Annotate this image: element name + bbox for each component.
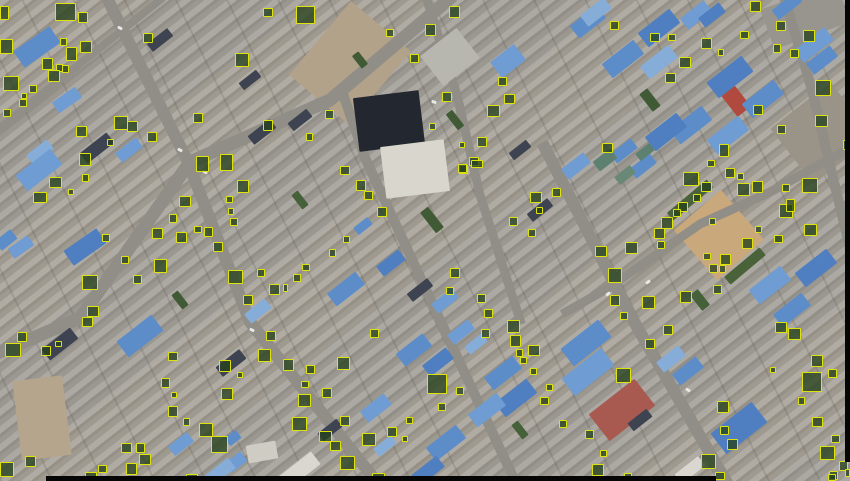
detection-box <box>786 199 795 212</box>
detection-box <box>803 30 815 42</box>
detection-box <box>663 325 673 335</box>
letterbox-bar <box>845 0 850 462</box>
detection-box <box>654 228 665 239</box>
detection-box <box>340 416 350 426</box>
detection-box <box>168 406 178 417</box>
detection-box <box>114 116 128 130</box>
detection-box <box>610 21 619 30</box>
detection-box <box>258 349 271 362</box>
detection-box <box>504 94 515 104</box>
detection-box <box>340 456 355 470</box>
detection-box <box>802 372 822 392</box>
detection-box <box>136 443 145 453</box>
detection-box <box>592 464 604 476</box>
detection-box <box>528 345 540 356</box>
detection-box <box>750 1 761 12</box>
aerial-detection-view <box>0 0 850 481</box>
detection-box <box>121 256 129 264</box>
detection-box <box>815 115 828 127</box>
detection-box <box>176 232 187 243</box>
detection-box <box>477 137 487 147</box>
detection-box <box>446 287 454 295</box>
detection-box <box>410 54 419 63</box>
detection-box <box>296 6 315 24</box>
detection-box <box>774 235 783 243</box>
detection-box <box>48 70 60 82</box>
detection-box <box>87 306 99 317</box>
detection-box <box>828 474 836 481</box>
detection-box <box>82 275 98 290</box>
detection-box <box>298 394 311 407</box>
detection-box <box>811 355 823 367</box>
detection-box <box>740 31 749 39</box>
detection-box <box>707 160 715 167</box>
detection-box <box>828 369 837 378</box>
detection-box <box>76 126 87 137</box>
detection-box <box>322 388 332 398</box>
detection-box <box>55 341 62 347</box>
detection-box <box>55 3 76 21</box>
detection-box <box>831 435 840 443</box>
detection-overlay <box>0 0 850 481</box>
detection-box <box>546 384 553 391</box>
detection-box <box>620 312 628 320</box>
detection-box <box>459 142 465 148</box>
detection-box <box>62 65 69 73</box>
detection-box <box>737 183 750 196</box>
detection-box <box>725 168 735 178</box>
detection-box <box>302 264 310 271</box>
detection-box <box>152 228 163 239</box>
detection-box <box>727 439 738 450</box>
detection-box <box>19 99 27 107</box>
detection-box <box>219 360 231 372</box>
detection-box <box>283 284 288 292</box>
detection-box <box>221 388 233 400</box>
detection-box <box>3 76 19 91</box>
detection-box <box>257 269 265 277</box>
detection-box <box>782 184 790 192</box>
detection-box <box>49 177 62 188</box>
detection-box <box>449 6 460 18</box>
detection-box <box>228 270 243 284</box>
detection-box <box>753 105 763 115</box>
detection-box <box>5 343 21 357</box>
detection-box <box>442 92 452 102</box>
detection-box <box>79 153 91 166</box>
detection-box <box>777 125 786 134</box>
detection-box <box>17 332 27 342</box>
detection-box <box>720 426 729 435</box>
detection-box <box>370 329 379 338</box>
detection-box <box>3 109 11 117</box>
detection-box <box>804 224 817 236</box>
detection-box <box>429 123 436 130</box>
detection-box <box>559 420 567 428</box>
detection-box <box>625 242 638 254</box>
detection-box <box>520 357 527 364</box>
detection-box <box>78 12 88 23</box>
detection-box <box>595 246 607 257</box>
detection-box <box>552 188 561 197</box>
detection-box <box>645 339 655 349</box>
detection-box <box>330 441 341 451</box>
detection-box <box>80 41 92 53</box>
detection-box <box>102 234 110 242</box>
detection-box <box>820 446 835 460</box>
detection-box <box>679 57 691 68</box>
detection-box <box>481 329 490 338</box>
detection-box <box>509 217 518 226</box>
detection-box <box>683 172 699 186</box>
detection-box <box>775 322 787 333</box>
detection-box <box>364 191 373 200</box>
detection-box <box>498 77 507 86</box>
detection-box <box>701 182 712 192</box>
detection-box <box>154 259 167 273</box>
detection-box <box>179 196 191 207</box>
detection-box <box>41 346 51 356</box>
detection-box <box>616 368 631 383</box>
detection-box <box>701 38 712 49</box>
detection-box <box>701 454 716 469</box>
detection-box <box>812 417 823 427</box>
detection-box <box>845 469 850 477</box>
detection-box <box>530 192 542 203</box>
detection-box <box>293 274 301 282</box>
detection-box <box>773 44 781 53</box>
letterbox-bar <box>46 476 716 481</box>
detection-box <box>815 80 831 96</box>
detection-box <box>60 38 67 46</box>
detection-box <box>456 387 464 395</box>
detection-box <box>266 331 276 341</box>
detection-box <box>147 132 157 142</box>
detection-box <box>340 166 350 175</box>
detection-box <box>471 160 483 168</box>
detection-box <box>194 226 202 233</box>
detection-box <box>230 218 238 226</box>
detection-box <box>507 320 520 333</box>
detection-box <box>406 417 413 424</box>
detection-box <box>356 180 366 191</box>
detection-box <box>306 133 313 141</box>
detection-box <box>540 397 549 405</box>
detection-box <box>82 174 89 182</box>
detection-box <box>33 192 47 203</box>
detection-box <box>226 196 233 203</box>
detection-box <box>337 357 350 370</box>
detection-box <box>642 296 655 309</box>
detection-box <box>650 33 660 42</box>
detection-box <box>536 207 543 214</box>
detection-box <box>477 294 486 303</box>
detection-box <box>458 164 467 173</box>
detection-box <box>450 268 460 278</box>
detection-box <box>66 47 77 61</box>
detection-box <box>169 214 177 223</box>
detection-box <box>0 6 9 20</box>
detection-box <box>438 403 446 411</box>
detection-box <box>713 285 722 294</box>
detection-box <box>237 180 249 193</box>
detection-box <box>402 436 408 442</box>
detection-box <box>693 194 701 202</box>
detection-box <box>211 436 228 453</box>
detection-box <box>665 73 676 83</box>
detection-box <box>720 254 731 265</box>
detection-box <box>610 295 620 306</box>
detection-box <box>484 309 493 318</box>
detection-box <box>25 456 36 467</box>
detection-box <box>228 208 234 215</box>
detection-box <box>42 58 53 70</box>
detection-box <box>292 417 307 431</box>
detection-box <box>306 365 315 374</box>
detection-box <box>213 242 223 252</box>
detection-box <box>243 295 253 305</box>
detection-box <box>776 21 786 31</box>
detection-box <box>139 454 151 465</box>
detection-box <box>717 401 729 413</box>
detection-box <box>377 207 387 217</box>
detection-box <box>82 317 93 327</box>
detection-box <box>585 430 594 439</box>
detection-box <box>171 392 177 398</box>
detection-box <box>193 113 203 123</box>
detection-box <box>107 139 114 146</box>
detection-box <box>719 265 726 273</box>
detection-box <box>790 49 799 58</box>
detection-box <box>608 268 622 283</box>
detection-box <box>719 144 729 157</box>
detection-box <box>329 249 336 257</box>
detection-box <box>715 472 725 480</box>
detection-box <box>121 443 132 453</box>
detection-box <box>199 423 213 437</box>
detection-box <box>29 85 37 93</box>
detection-box <box>161 378 170 388</box>
detection-box <box>770 367 776 373</box>
detection-box <box>798 397 805 405</box>
detection-box <box>602 143 613 153</box>
detection-box <box>126 463 137 475</box>
detection-box <box>427 374 447 394</box>
detection-box <box>516 349 523 357</box>
detection-box <box>680 291 692 303</box>
detection-box <box>673 209 681 217</box>
detection-box <box>283 359 294 371</box>
detection-box <box>530 368 537 375</box>
detection-box <box>755 226 762 233</box>
detection-box <box>737 173 744 180</box>
detection-box <box>263 120 273 131</box>
detection-box <box>0 462 14 477</box>
detection-box <box>510 335 521 347</box>
detection-box <box>709 264 718 273</box>
detection-box <box>362 433 376 446</box>
detection-box <box>196 156 209 172</box>
detection-box <box>183 418 190 426</box>
detection-box <box>325 110 334 119</box>
detection-box <box>742 238 753 249</box>
detection-box <box>263 8 273 17</box>
detection-box <box>204 227 213 237</box>
detection-box <box>301 381 309 388</box>
detection-box <box>143 33 153 43</box>
detection-box <box>657 241 665 249</box>
detection-box <box>487 105 500 117</box>
detection-box <box>802 178 818 193</box>
detection-box <box>237 372 243 378</box>
detection-box <box>788 328 801 340</box>
detection-box <box>709 218 716 225</box>
detection-box <box>425 24 436 36</box>
detection-box <box>386 29 394 37</box>
detection-box <box>387 427 397 437</box>
detection-box <box>127 121 138 132</box>
detection-box <box>528 229 536 237</box>
detection-box <box>235 53 249 67</box>
detection-box <box>343 236 350 243</box>
detection-box <box>133 275 142 284</box>
detection-box <box>98 465 107 473</box>
detection-box <box>68 189 74 195</box>
detection-box <box>269 284 280 295</box>
detection-box <box>220 154 233 171</box>
detection-box <box>718 49 724 56</box>
detection-box <box>168 352 178 361</box>
detection-box <box>668 34 676 41</box>
detection-box <box>703 253 711 260</box>
detection-box <box>752 181 763 193</box>
detection-box <box>600 450 607 457</box>
detection-box <box>0 39 13 54</box>
